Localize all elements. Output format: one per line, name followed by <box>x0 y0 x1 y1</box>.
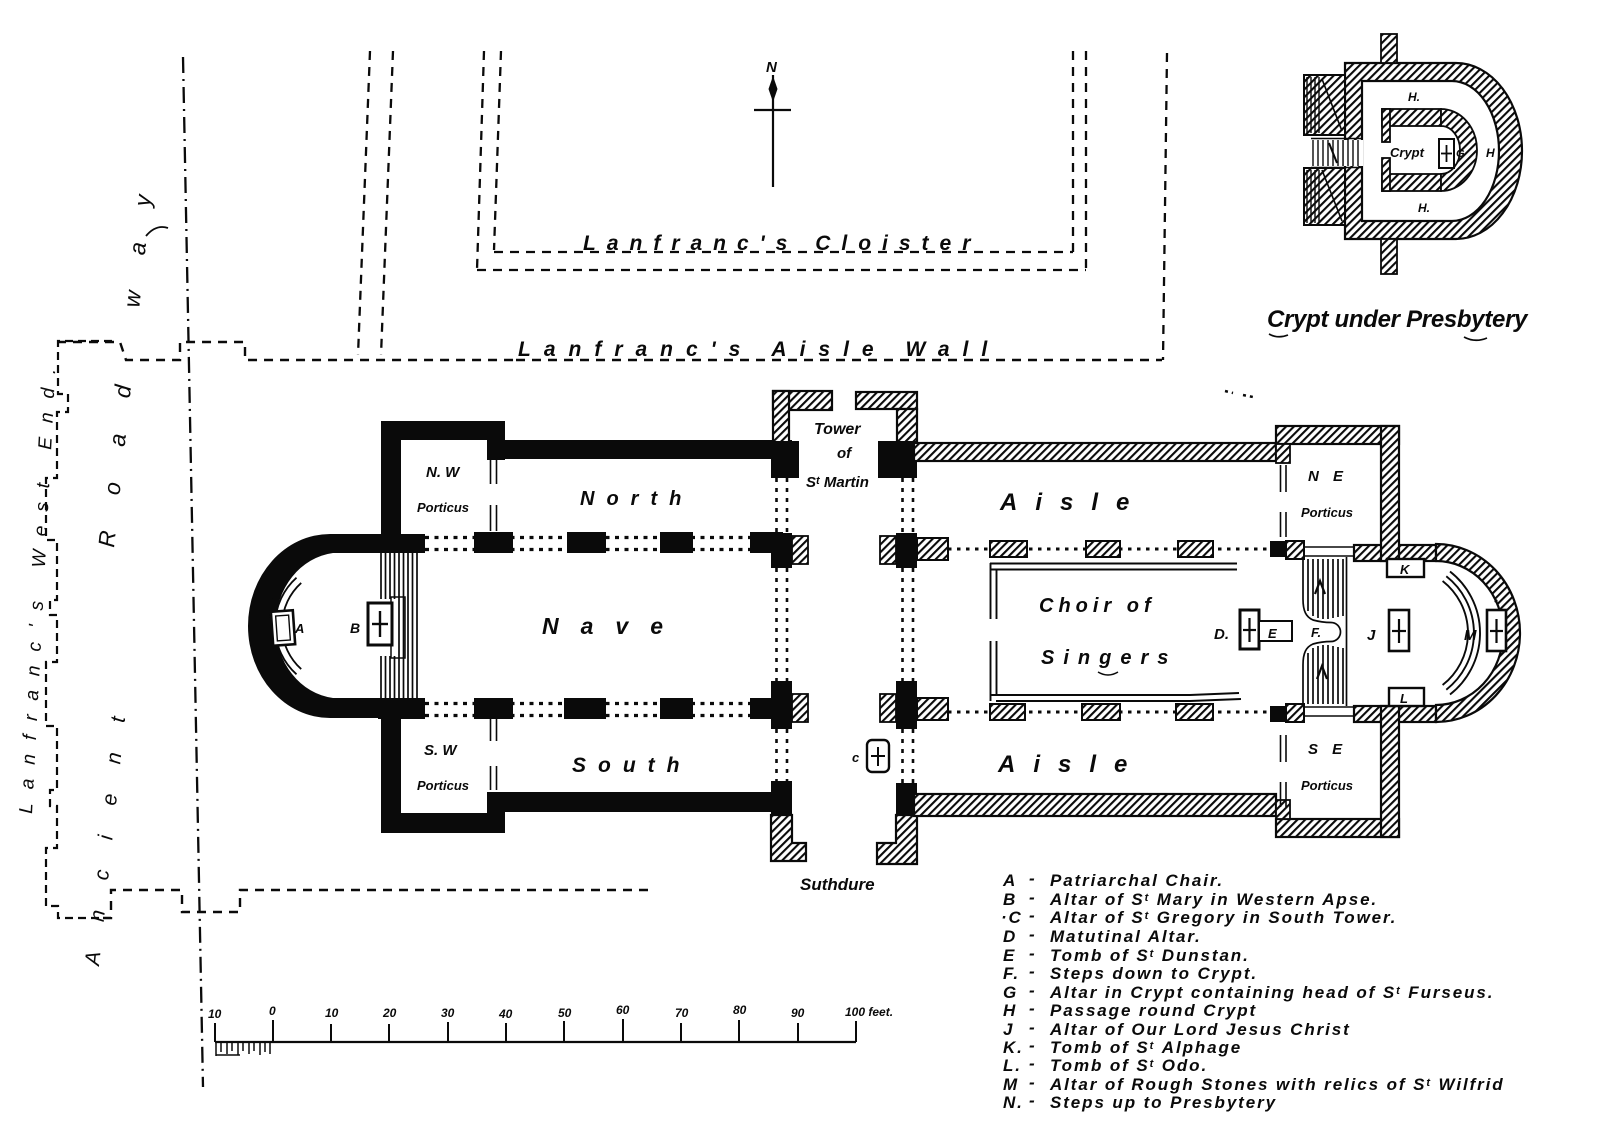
svg-text:E: E <box>1268 626 1277 641</box>
svg-text:0: 0 <box>269 1004 276 1018</box>
svg-text:H.: H. <box>1408 90 1420 104</box>
svg-text:L: L <box>1400 691 1408 706</box>
svg-text:J: J <box>1367 627 1376 644</box>
svg-text:10: 10 <box>208 1007 222 1021</box>
svg-text:Choir of: Choir of <box>1039 595 1156 617</box>
svg-text:Altar of Our Lord Jesus Christ: Altar of Our Lord Jesus Christ <box>1049 1020 1351 1039</box>
svg-text:70: 70 <box>675 1006 689 1020</box>
svg-text:D: D <box>1003 927 1017 946</box>
svg-text:S E: S E <box>1308 741 1347 758</box>
svg-text:-: - <box>1029 1054 1037 1073</box>
svg-text:c: c <box>852 750 860 765</box>
svg-text:Altar of St Mary in Western Ap: Altar of St Mary in Western Apse. <box>1049 890 1378 909</box>
svg-text:E: E <box>1003 946 1016 965</box>
svg-text:Altar of Rough Stones with rel: Altar of Rough Stones with relics of St … <box>1049 1075 1505 1094</box>
svg-text:Lanfranc's Cloister: Lanfranc's Cloister <box>583 232 981 255</box>
svg-text:-: - <box>1029 999 1037 1018</box>
svg-text:Passage round Crypt: Passage round Crypt <box>1050 1001 1257 1020</box>
svg-text:H: H <box>1003 1001 1017 1020</box>
svg-text:Nave: Nave <box>542 613 685 639</box>
svg-text:Crypt: Crypt <box>1390 145 1425 160</box>
svg-text:-: - <box>1029 906 1037 925</box>
svg-text:N. W: N. W <box>426 464 461 481</box>
svg-text:Altar of St Gregory in South T: Altar of St Gregory in South Tower. <box>1049 908 1397 927</box>
svg-text:K.: K. <box>1003 1038 1024 1057</box>
svg-text:50: 50 <box>558 1006 572 1020</box>
svg-text:N E: N E <box>1308 468 1348 485</box>
svg-text:Tower: Tower <box>814 421 861 438</box>
svg-text:80: 80 <box>733 1003 747 1017</box>
svg-text:L.: L. <box>1003 1056 1022 1075</box>
svg-text:-: - <box>1029 869 1037 888</box>
svg-text:of: of <box>837 445 853 462</box>
svg-text:Patriarchal Chair.: Patriarchal Chair. <box>1050 871 1224 890</box>
svg-text:B: B <box>350 620 360 636</box>
svg-text:North: North <box>580 488 693 510</box>
svg-text:-: - <box>1029 1018 1037 1037</box>
svg-text:-: - <box>1029 944 1037 963</box>
svg-text:Porticus: Porticus <box>417 500 469 515</box>
svg-text:N.: N. <box>1003 1093 1024 1112</box>
svg-text:-: - <box>1029 962 1037 981</box>
svg-text:90: 90 <box>791 1006 805 1020</box>
svg-text:100 feet.: 100 feet. <box>845 1005 893 1019</box>
svg-text:H.: H. <box>1418 201 1430 215</box>
svg-text:Aisle: Aisle <box>999 489 1147 516</box>
svg-text:B: B <box>1003 890 1017 909</box>
svg-text:Matutinal Altar.: Matutinal Altar. <box>1050 927 1202 946</box>
svg-text:N: N <box>766 59 778 76</box>
svg-text:20: 20 <box>382 1006 397 1020</box>
svg-text:F.: F. <box>1003 964 1020 983</box>
svg-text:10: 10 <box>325 1006 339 1020</box>
svg-text:D.: D. <box>1214 626 1229 643</box>
svg-text:Porticus: Porticus <box>1301 778 1353 793</box>
svg-text:Tomb of St Alphage: Tomb of St Alphage <box>1050 1038 1242 1057</box>
svg-text:G: G <box>1003 983 1018 1002</box>
svg-text:Steps up to Presbytery: Steps up to Presbytery <box>1050 1093 1277 1112</box>
svg-text:Crypt under Presbytery: Crypt under Presbytery <box>1267 306 1529 333</box>
svg-text:Steps down to Crypt.: Steps down to Crypt. <box>1050 964 1258 983</box>
svg-text:-: - <box>1029 1091 1037 1110</box>
svg-text:Porticus: Porticus <box>1301 505 1353 520</box>
svg-text:H: H <box>1486 146 1495 160</box>
svg-text:St Martin: St Martin <box>806 474 869 491</box>
svg-text:K: K <box>1400 562 1411 577</box>
svg-text:·C: ·C <box>1001 908 1023 927</box>
svg-text:F.: F. <box>1311 625 1321 640</box>
svg-text:Tomb of St Odo.: Tomb of St Odo. <box>1050 1056 1208 1075</box>
svg-text:Aisle: Aisle <box>997 751 1145 778</box>
svg-text:Suthdure: Suthdure <box>800 875 875 894</box>
svg-text:S. W: S. W <box>424 742 458 759</box>
svg-text:30: 30 <box>441 1006 455 1020</box>
svg-text:J: J <box>1003 1020 1014 1039</box>
svg-text:Porticus: Porticus <box>417 778 469 793</box>
svg-text:-: - <box>1029 925 1037 944</box>
svg-text:60: 60 <box>616 1003 630 1017</box>
svg-text:Singers: Singers <box>1041 647 1177 669</box>
svg-text:M: M <box>1003 1075 1019 1094</box>
svg-text:M: M <box>1464 627 1477 644</box>
svg-text:-: - <box>1029 1036 1037 1055</box>
svg-text:A: A <box>1002 871 1017 890</box>
svg-text:Altar in Crypt containing head: Altar in Crypt containing head of St Fur… <box>1049 983 1494 1002</box>
svg-text:A: A <box>294 621 304 636</box>
svg-text:-: - <box>1029 1073 1037 1092</box>
svg-text:South: South <box>572 754 691 777</box>
svg-text:40: 40 <box>498 1007 513 1021</box>
svg-text:-: - <box>1029 888 1037 907</box>
svg-text:G: G <box>1456 148 1465 160</box>
svg-text:-: - <box>1029 981 1037 1000</box>
svg-text:Lanfranc's Aisle Wall: Lanfranc's Aisle Wall <box>518 338 1000 361</box>
